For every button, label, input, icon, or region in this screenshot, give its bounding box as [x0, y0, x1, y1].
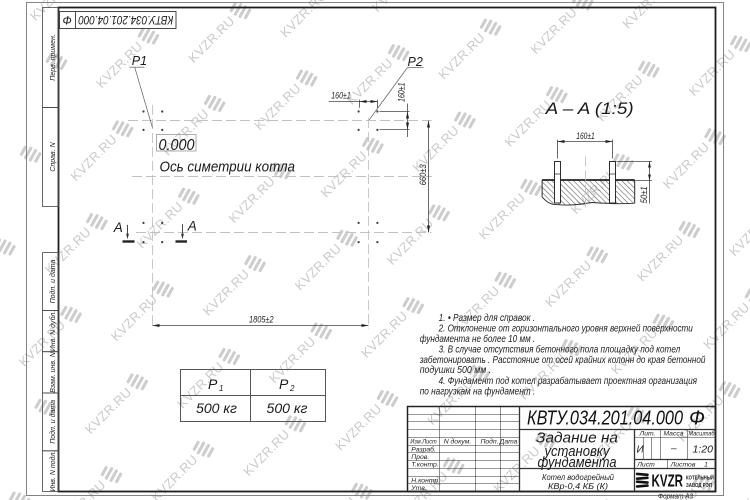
svg-text:КВТУ.034.201.04.000: КВТУ.034.201.04.000 [527, 408, 683, 430]
svg-text:Пров.: Пров. [411, 454, 429, 461]
svg-text:KVZR.RU: KVZR.RU [490, 443, 542, 495]
svg-text:Утв.: Утв. [410, 485, 427, 492]
svg-text:KVZR.RU: KVZR.RU [343, 55, 395, 107]
svg-text:забетонировать . Расстояние: забетонировать . Расстояние от осей край… [419, 354, 706, 366]
svg-text:Подп.: Подп. [480, 438, 498, 446]
svg-text:KVZR.RU: KVZR.RU [292, 241, 344, 293]
svg-text:N докум.: N докум. [444, 438, 472, 446]
svg-text:160±1: 160±1 [331, 91, 351, 102]
svg-text:подушки 500 мм .: подушки 500 мм . [420, 365, 491, 376]
svg-text:1805±2: 1805±2 [249, 314, 274, 325]
svg-text:Лит.: Лит. [639, 431, 656, 438]
svg-text:И: И [637, 445, 645, 456]
svg-text:KVZR.RU: KVZR.RU [185, 13, 237, 65]
svg-text:KVZR.RU: KVZR.RU [700, 299, 750, 351]
svg-text:0.000: 0.000 [159, 137, 195, 154]
svg-text:Формат А3: Формат А3 [658, 491, 694, 500]
svg-text:KVZR.RU: KVZR.RU [619, 0, 671, 31]
svg-text:50±1: 50±1 [639, 186, 650, 203]
svg-text:KVZR.RU: KVZR.RU [660, 139, 712, 191]
svg-text:4. Фундамент под котел раз: 4. Фундамент под котел разрабатывает про… [439, 375, 698, 387]
svg-text:2: 2 [289, 384, 295, 393]
svg-text:KVZR.RU: KVZR.RU [476, 190, 528, 242]
svg-text:Ф: Ф [689, 408, 705, 430]
svg-text:Разраб.: Разраб. [411, 445, 436, 453]
svg-text:Ф: Ф [63, 13, 72, 25]
svg-text:КОТЕЛЬНЫЙ: КОТЕЛЬНЫЙ [686, 473, 714, 481]
svg-text:KVZR.RU: KVZR.RU [266, 334, 318, 386]
svg-text:Н.контр.: Н.контр. [411, 477, 440, 484]
svg-text:3. В случае отсутствия бет: 3. В случае отсутствия бетонного пола пл… [439, 343, 681, 355]
svg-text:Дата: Дата [499, 439, 518, 446]
svg-text:P1: P1 [132, 54, 147, 68]
svg-text:KVZR.RU: KVZR.RU [277, 0, 329, 40]
svg-text:A: A [187, 219, 197, 234]
svg-text:KVZR.RU: KVZR.RU [332, 401, 384, 453]
svg-text:KVZR.RU: KVZR.RU [56, 477, 108, 500]
svg-text:A: A [113, 220, 123, 235]
svg-text:KVZR.RU: KVZR.RU [634, 232, 686, 284]
svg-text:по нагрузкам на фундамент .: по нагрузкам на фундамент . [420, 385, 536, 397]
svg-text:2. Отклонение от горизонтал: 2. Отклонение от горизонтального уровня … [438, 324, 693, 335]
svg-text:Подп. и дата: Подп. и дата [49, 259, 57, 303]
svg-text:KVZR.RU: KVZR.RU [82, 384, 134, 436]
svg-text:Взам. инв. N: Взам. инв. N [50, 351, 57, 393]
svg-text:A – A (1:5): A – A (1:5) [544, 100, 633, 118]
svg-text:KVZR.RU: KVZR.RU [67, 131, 119, 183]
svg-text:KVZR.RU: KVZR.RU [435, 30, 487, 82]
svg-text:KVZR: KVZR [652, 471, 684, 491]
svg-text:Перв. примен.: Перв. примен. [50, 34, 57, 81]
svg-text:KVZR.RU: KVZR.RU [726, 207, 750, 259]
svg-text:P: P [279, 376, 289, 392]
svg-text:Масса: Масса [663, 431, 683, 438]
svg-text:KVZR.RU: KVZR.RU [16, 317, 68, 369]
svg-text:KVZR.RU: KVZR.RU [200, 266, 252, 318]
svg-text:Т.контр.: Т.контр. [411, 462, 439, 469]
svg-text:KVZR.RU: KVZR.RU [148, 452, 200, 500]
svg-text:1. • Размер для справок .: 1. • Размер для справок . [439, 313, 536, 324]
svg-text:KVZR.RU: KVZR.RU [542, 257, 594, 309]
svg-text:КВр-0,4 КБ (К): КВр-0,4 КБ (К) [548, 482, 608, 491]
svg-text:фундамента не более 10 мм: фундамента не более 10 мм . [420, 333, 536, 345]
svg-text:Котел водогрейный: Котел водогрейный [542, 473, 614, 482]
svg-text:P: P [208, 376, 218, 392]
svg-text:Лист: Лист [636, 462, 655, 469]
svg-text:Листов: Листов [670, 462, 696, 469]
svg-text:KVZR.RU: KVZR.RU [226, 173, 278, 225]
svg-text:500 кг: 500 кг [267, 400, 308, 416]
svg-text:160±1: 160±1 [397, 82, 408, 102]
svg-text:160±1: 160±1 [576, 131, 595, 142]
svg-text:1: 1 [219, 384, 223, 393]
svg-text:660±3: 660±3 [418, 164, 429, 186]
svg-text:–: – [670, 444, 677, 455]
svg-text:1: 1 [704, 462, 708, 469]
svg-text:Инв. N подл.: Инв. N подл. [49, 451, 57, 492]
svg-text:ЗАВОД РЭП: ЗАВОД РЭП [686, 483, 712, 489]
svg-text:KVZR.RU: KVZR.RU [240, 426, 292, 478]
svg-text:Подп. и дата: Подп. и дата [49, 400, 57, 444]
svg-text:KVZR.RU: KVZR.RU [358, 308, 410, 360]
svg-text:KVZR.RU: KVZR.RU [686, 46, 738, 98]
svg-text:KVZR.RU: KVZR.RU [318, 148, 370, 200]
svg-text:KVZR.RU: KVZR.RU [306, 494, 358, 500]
svg-text:500 кг: 500 кг [196, 400, 237, 416]
svg-text:KVZR.RU: KVZR.RU [251, 81, 303, 133]
svg-text:Масштаб: Масштаб [689, 430, 716, 438]
svg-text:P2: P2 [408, 55, 423, 69]
svg-text:1:20: 1:20 [693, 444, 714, 456]
svg-text:Изм.Лист: Изм.Лист [410, 439, 437, 446]
svg-text:КВТУ.034.201.04.000: КВТУ.034.201.04.000 [78, 13, 174, 25]
svg-text:Инв. N дубл.: Инв. N дубл. [49, 311, 57, 352]
svg-text:KVZR.RU: KVZR.RU [527, 4, 579, 56]
svg-text:Справ. N: Справ. N [50, 141, 57, 171]
svg-text:KVZR.RU: KVZR.RU [741, 460, 750, 500]
svg-text:KVZR.RU: KVZR.RU [134, 199, 186, 251]
svg-text:фундамента: фундамента [538, 455, 617, 471]
svg-text:Ось симетрии котла: Ось симетрии котла [160, 158, 296, 175]
